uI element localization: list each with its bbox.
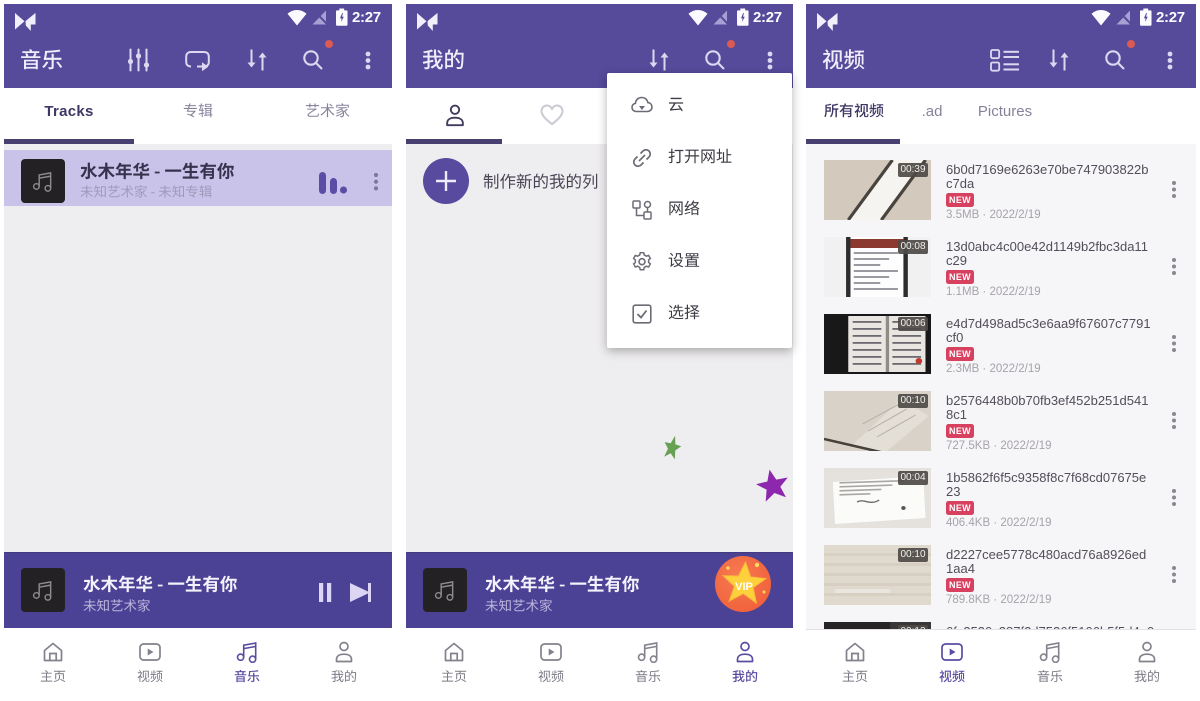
svg-text:VIP: VIP xyxy=(735,581,753,593)
